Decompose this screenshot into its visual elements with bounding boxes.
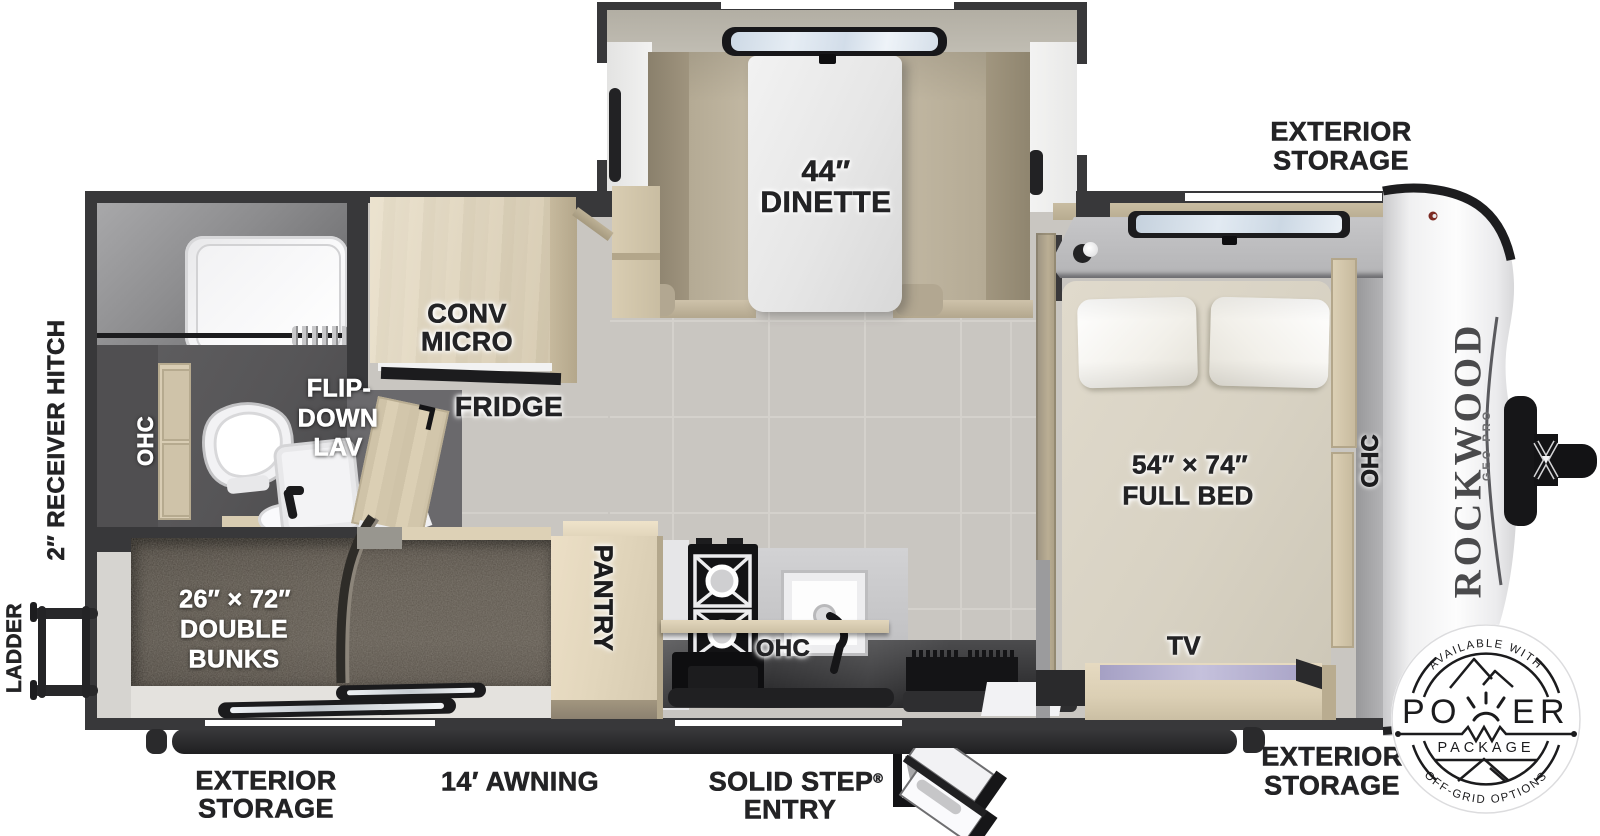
svg-text:PACKAGE: PACKAGE [1437,740,1534,756]
svg-text:E: E [1512,693,1541,731]
svg-text:O: O [1430,693,1462,731]
svg-text:P: P [1402,693,1431,731]
svg-text:R: R [1540,693,1571,731]
